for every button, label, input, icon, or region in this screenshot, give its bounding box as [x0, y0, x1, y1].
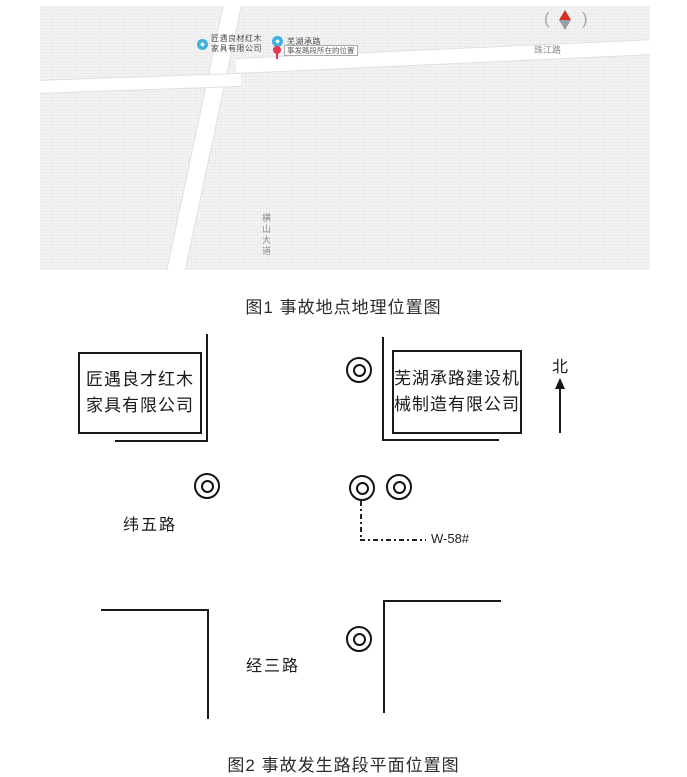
road-line: [101, 609, 209, 611]
accident-report-page: { "colors": { "poi_blue": "#3fb0e0", "pi…: [0, 0, 687, 777]
poi-glyph: ◆: [200, 42, 205, 48]
figure1-caption: 图1 事故地点地理位置图: [0, 293, 687, 318]
map-company1-label: 匠遇良材红木 家具有限公司: [211, 34, 262, 54]
company-box-right: 芜湖承路建设机 械制造有限公司: [392, 350, 522, 434]
north-arrow-head: [555, 378, 565, 389]
map-figure: ◆ 匠遇良材红木 家具有限公司 ◆ 芜湖承路 事发路段所在的位置 珠江路 横山大…: [40, 6, 650, 270]
company-right-line2: 械制造有限公司: [394, 392, 520, 418]
compass-left-paren[interactable]: (: [544, 9, 550, 29]
road-label-hengshan: 横山大道: [260, 213, 273, 257]
road-line: [207, 609, 209, 719]
north-arrow-shaft: [559, 388, 561, 433]
poi-glyph: ◆: [275, 39, 280, 45]
road-line: [206, 334, 208, 442]
compass-right-paren[interactable]: ): [582, 9, 588, 29]
well-leader-horizontal: [360, 539, 426, 541]
road-label-weiwu: 纬五路: [123, 511, 177, 535]
manhole-circle: [349, 475, 375, 501]
road-line: [383, 600, 385, 713]
company-poi-icon: ◆: [197, 39, 208, 50]
road-label-jingsan: 经三路: [246, 652, 300, 676]
manhole-circle: [386, 474, 412, 500]
manhole-circle: [346, 357, 372, 383]
well-leader-vertical: [360, 501, 362, 541]
company-left-line1: 匠遇良才红木: [86, 367, 194, 393]
road-line: [382, 439, 499, 441]
manhole-circle: [194, 473, 220, 499]
figure2-caption: 图2 事故发生路段平面位置图: [0, 751, 687, 776]
compass-south-needle[interactable]: [559, 20, 571, 30]
pin-label-box: 事发路段所在的位置: [284, 45, 358, 56]
manhole-circle: [346, 626, 372, 652]
road-line: [115, 440, 208, 442]
location-pin-stem: [276, 53, 278, 59]
road-label-zhujiang: 珠江路: [534, 43, 561, 56]
compass-north-needle[interactable]: [559, 10, 571, 20]
north-label: 北: [552, 353, 568, 377]
road-line: [382, 337, 384, 441]
company-right-line1: 芜湖承路建设机: [394, 366, 520, 392]
road-line: [383, 600, 501, 602]
company-left-line2: 家具有限公司: [86, 393, 194, 419]
company-box-left: 匠遇良才红木 家具有限公司: [78, 352, 202, 434]
well-label: W-58#: [431, 531, 469, 546]
